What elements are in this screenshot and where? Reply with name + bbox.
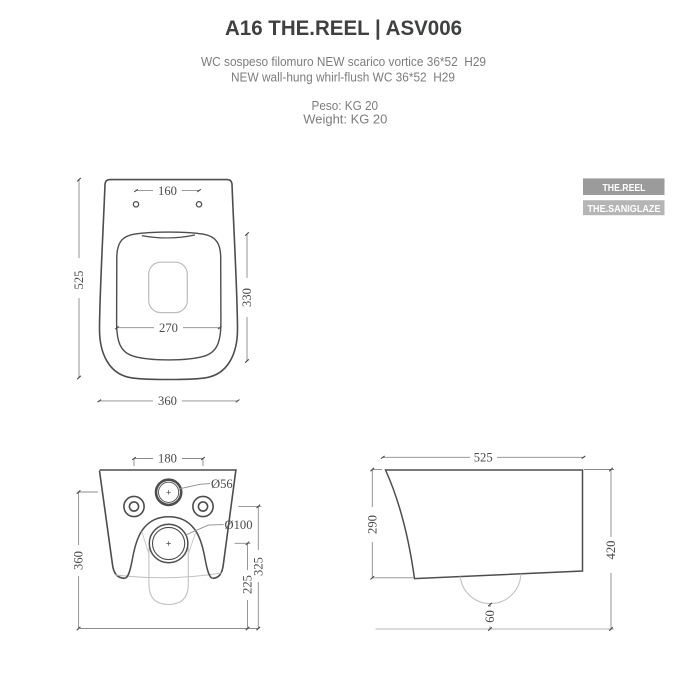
svg-text:290: 290 — [365, 515, 379, 534]
svg-text:Ø56: Ø56 — [211, 477, 233, 491]
svg-text:Ø100: Ø100 — [225, 518, 253, 532]
svg-text:330: 330 — [240, 288, 254, 307]
svg-text:325: 325 — [251, 557, 265, 576]
svg-text:Weight: KG 20: Weight: KG 20 — [303, 112, 387, 127]
svg-text:360: 360 — [72, 551, 86, 570]
svg-text:THE.REEL: THE.REEL — [603, 182, 646, 194]
svg-text:225: 225 — [241, 575, 255, 594]
svg-text:270: 270 — [159, 321, 178, 335]
svg-text:160: 160 — [158, 184, 177, 198]
svg-text:525: 525 — [72, 271, 86, 290]
svg-text:420: 420 — [604, 541, 618, 560]
svg-text:WC sospeso filomuro NEW scaric: WC sospeso filomuro NEW scarico vortice … — [201, 54, 486, 69]
svg-text:THE.SANIGLAZE: THE.SANIGLAZE — [588, 204, 661, 215]
svg-text:360: 360 — [158, 394, 177, 408]
svg-text:A16 THE.REEL | ASV006: A16 THE.REEL | ASV006 — [225, 16, 462, 40]
svg-text:NEW wall-hung whirl-flush WC 3: NEW wall-hung whirl-flush WC 36*52 H29 — [231, 70, 455, 85]
svg-text:180: 180 — [158, 452, 177, 466]
svg-text:60: 60 — [483, 610, 497, 623]
svg-text:525: 525 — [474, 451, 493, 465]
